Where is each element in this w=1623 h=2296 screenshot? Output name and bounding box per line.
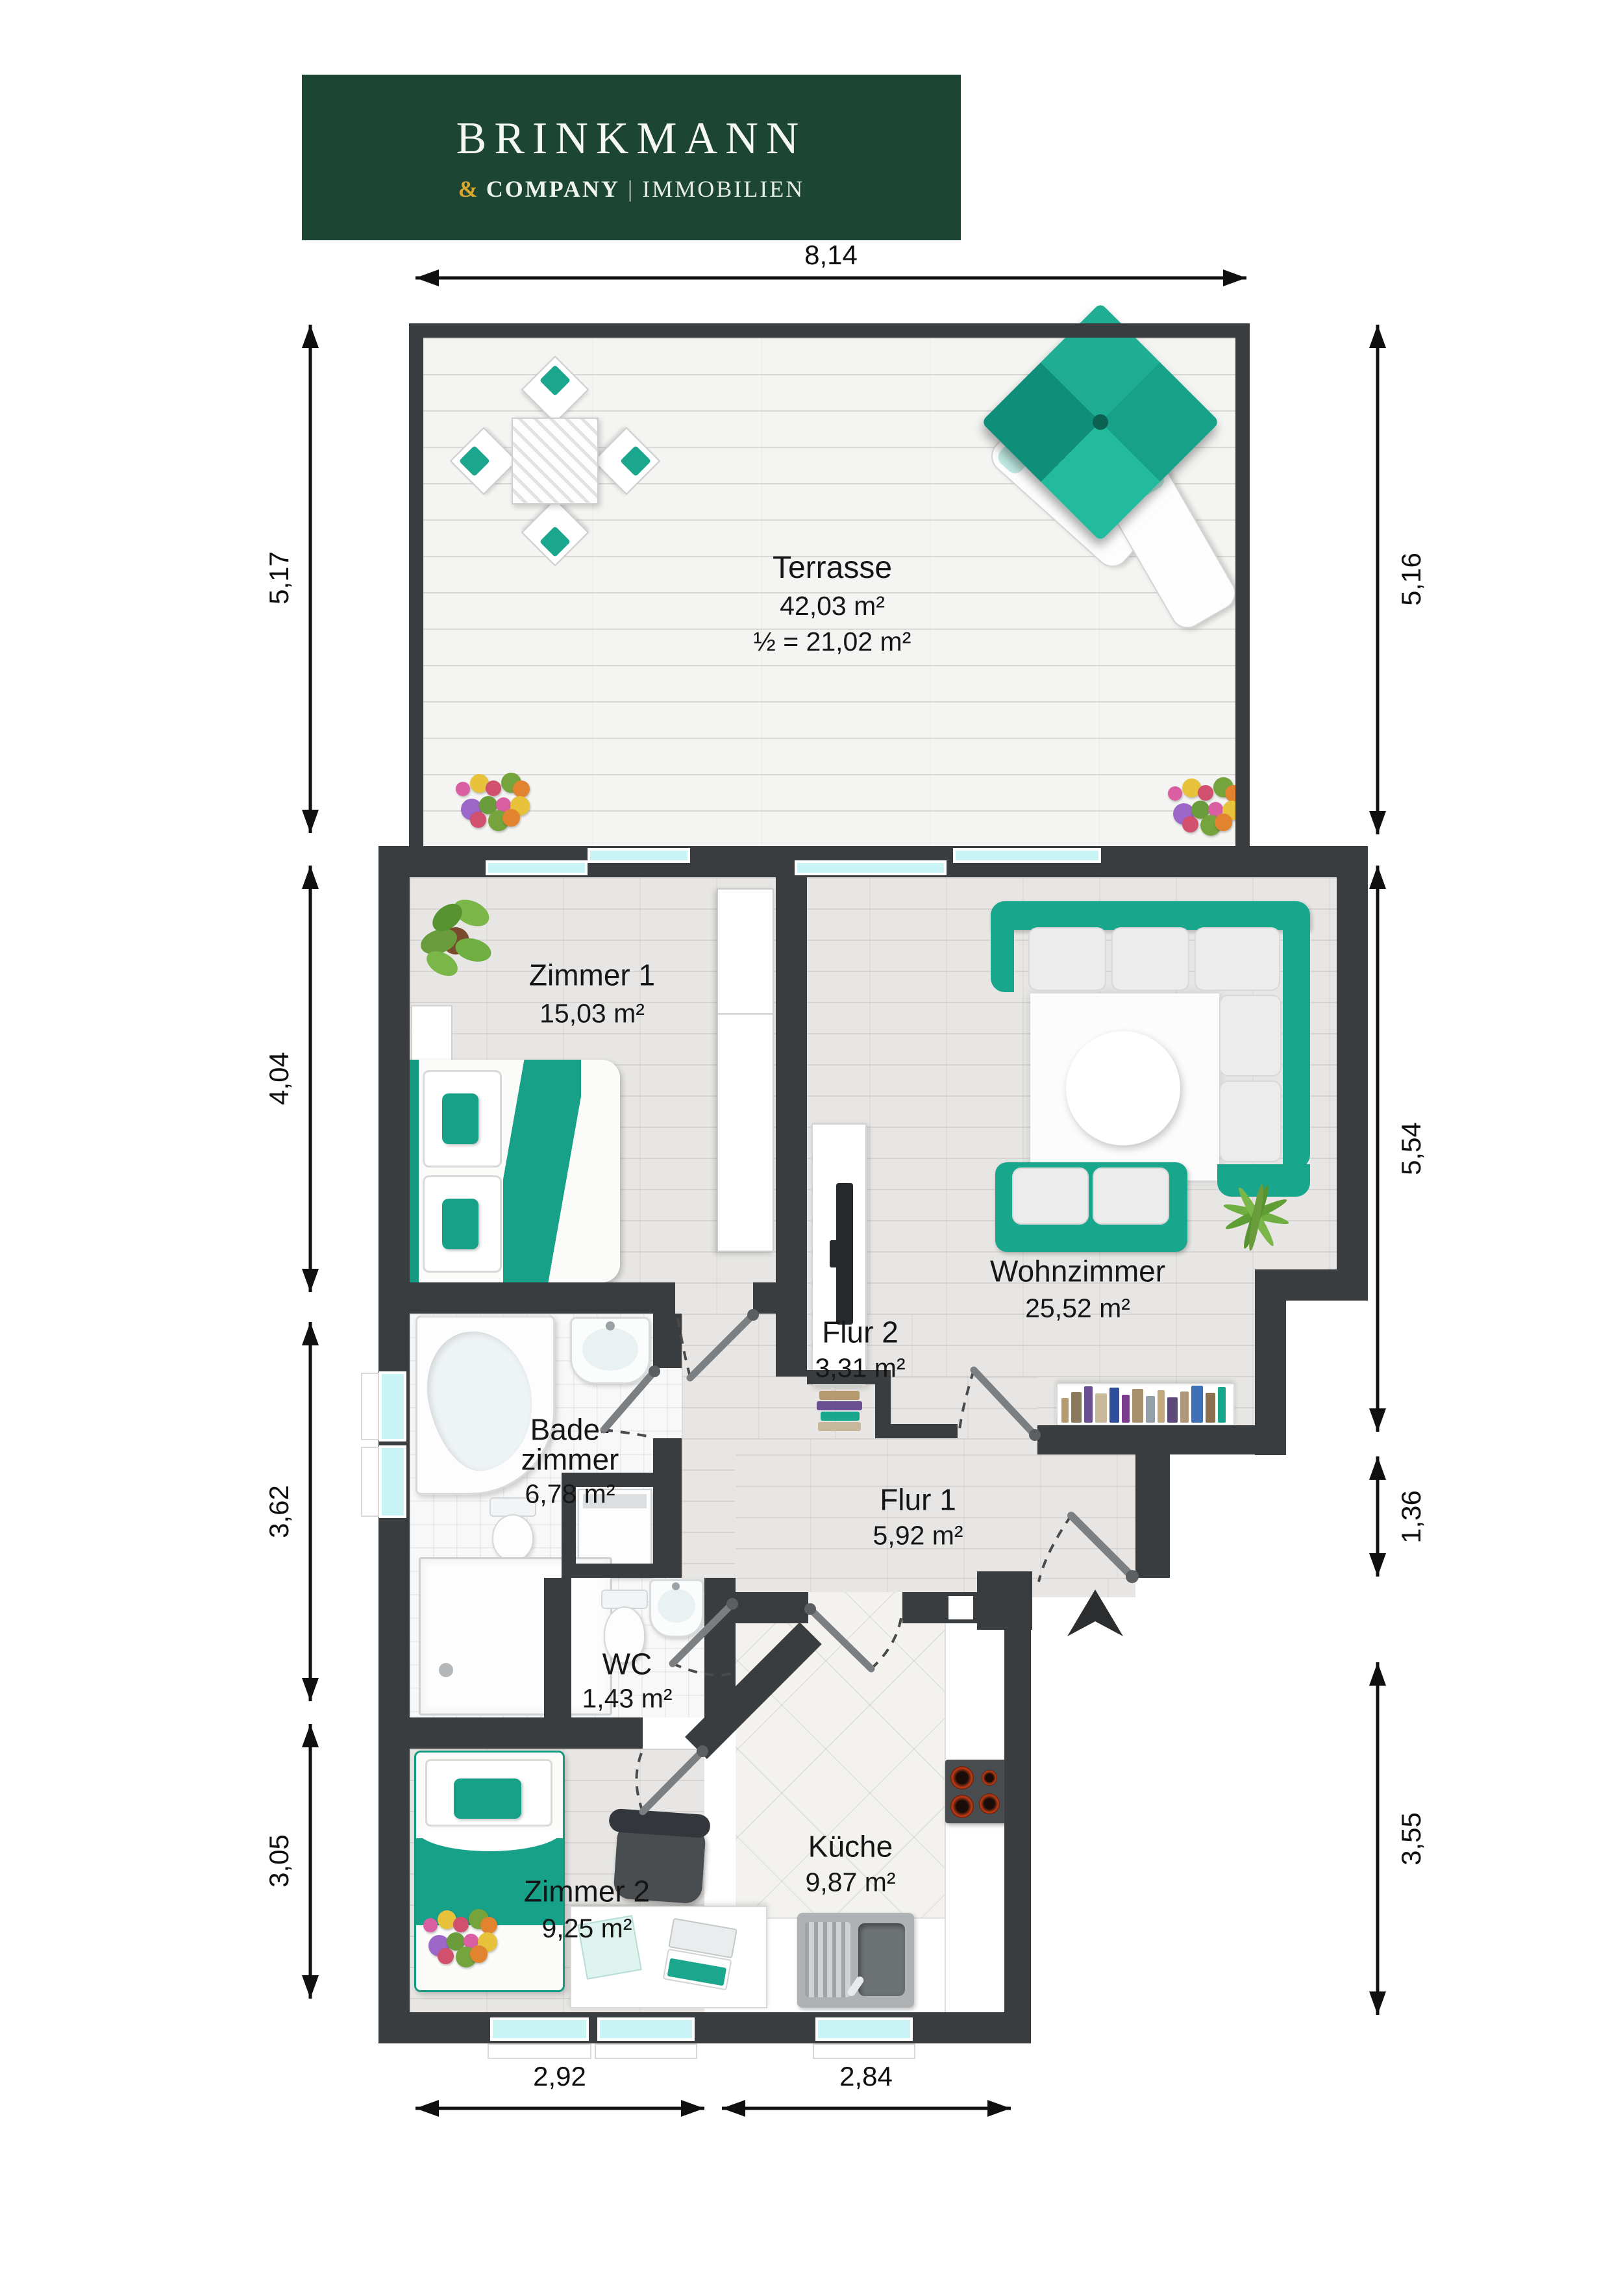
burner (979, 1793, 1000, 1814)
wall-divider-bedroom1-living (776, 877, 807, 1377)
sofa-cushion (1111, 927, 1189, 991)
loveseat-cushion (1012, 1167, 1089, 1225)
sink-basin (582, 1328, 638, 1371)
loveseat-icon (995, 1162, 1187, 1252)
wall-bath-right-b (653, 1438, 682, 1578)
entry-threshold-floor (1031, 1578, 1135, 1597)
sofa-back (991, 901, 1310, 930)
flower-dot (423, 1918, 438, 1932)
dim-label-left-terrace: 5,17 (264, 551, 295, 605)
room-label-badezimmer: Bade- zimmer 6,78 m² (521, 1415, 619, 1508)
wall-bath-right-a (653, 1314, 682, 1368)
wall-bedroom2-top (378, 1717, 643, 1749)
flower-dot (1182, 816, 1198, 832)
palm-plant-icon (1222, 1184, 1291, 1255)
kitchen-niche (945, 1592, 977, 1623)
logo-divider: | (628, 176, 634, 202)
room-name2: zimmer (521, 1445, 619, 1475)
room-label-zimmer2: Zimmer 2 9,25 m² (524, 1877, 650, 1942)
dim-label-bottom-bedroom2: 2,92 (533, 2061, 586, 2092)
flower-box-icon (453, 771, 531, 833)
window-bedroom2 (490, 2017, 589, 2041)
dimension-arrowhead (302, 810, 319, 833)
dimension-arrowhead (302, 325, 319, 348)
outside-cover-right (1286, 1301, 1368, 1455)
hall1-floor-left (682, 1438, 736, 1592)
room-label-kueche: Küche 9,87 m² (806, 1832, 896, 1896)
room-area-half: ½ = 21,02 m² (754, 629, 911, 655)
room-label-flur1: Flur 1 5,92 m² (873, 1485, 963, 1549)
room-area: 9,25 m² (524, 1915, 650, 1942)
room-area: 9,87 m² (806, 1869, 896, 1896)
logo-company: COMPANY (486, 176, 620, 202)
flower-dot (486, 780, 501, 796)
room-label-wc: WC 1,43 m² (582, 1649, 673, 1712)
wall-left (378, 846, 410, 2043)
dimension-arrowhead (1223, 269, 1246, 286)
terrace-dining-table (512, 418, 599, 505)
logo-ampersand: & (458, 176, 480, 202)
room-name: Wohnzimmer (990, 1256, 1165, 1286)
book-spine (1095, 1393, 1107, 1423)
window-livingroom (795, 860, 947, 875)
window-kitchen (815, 2017, 913, 2041)
book-spine (1084, 1386, 1093, 1423)
terrace-wall-left (409, 323, 423, 847)
sink-basin (858, 1923, 905, 1996)
flower-dot (470, 1945, 488, 1963)
room-area: 1,43 m² (582, 1686, 673, 1712)
book-spine (1071, 1392, 1082, 1423)
room-name: Küche (806, 1832, 896, 1862)
dim-label-right-living: 5,54 (1396, 1122, 1427, 1175)
book-spine (1061, 1398, 1069, 1423)
dimension-arrowhead (1369, 1553, 1386, 1577)
double-bed-icon (406, 1060, 620, 1282)
flower-box-icon (1165, 776, 1243, 838)
dim-label-left-bedroom2: 3,05 (264, 1834, 295, 1888)
sink-basin (658, 1589, 695, 1623)
window-bathroom (379, 1371, 406, 1441)
laptop-icon (662, 1918, 741, 1993)
chair-cushion (539, 526, 571, 557)
book-spine (1158, 1390, 1165, 1423)
window-bathroom (379, 1445, 406, 1518)
flower-dot (456, 782, 470, 796)
window-livingroom (953, 848, 1101, 863)
book-spine (1122, 1395, 1130, 1423)
room-area: 15,03 m² (529, 1001, 655, 1027)
window-sill (813, 2043, 915, 2059)
dimension-arrowhead (1369, 811, 1386, 834)
logo-title: BRINKMANN (456, 113, 807, 165)
shower-drain (439, 1663, 453, 1677)
book-spine (1132, 1389, 1143, 1423)
coffee-table-icon (1066, 1031, 1180, 1145)
dimension-arrowhead (302, 1975, 319, 1999)
flower-dot (502, 809, 520, 827)
flower-dot (480, 1917, 497, 1934)
sofa-cushion (1195, 927, 1280, 991)
wall-kitchen-top-a (736, 1592, 808, 1623)
sofa-cushion (1219, 995, 1282, 1077)
wardrobe-icon (717, 888, 774, 1252)
wc-sink-icon (649, 1579, 704, 1638)
flower-dot (438, 1948, 454, 1964)
dimension-arrowhead (302, 1724, 319, 1747)
room-area: 3,31 m² (815, 1355, 906, 1382)
window-bedroom1 (486, 860, 588, 875)
sink-tap (606, 1321, 615, 1330)
wall-wc-left (544, 1578, 571, 1717)
dimension-arrowhead (415, 269, 439, 286)
cooktop-icon (945, 1760, 1006, 1823)
company-logo: BRINKMANN &COMPANY|IMMOBILIEN (302, 75, 961, 240)
room-name: WC (582, 1649, 673, 1679)
tv-stand (830, 1240, 839, 1267)
flower-dot (1198, 785, 1213, 801)
dimension-arrowhead (302, 1678, 319, 1701)
sink-tap (672, 1582, 680, 1590)
parasol-pole (1089, 411, 1111, 433)
dimension-arrowhead (681, 2100, 704, 2117)
sofa-left-arm (991, 901, 1014, 992)
wall-entry-block (977, 1571, 1032, 1630)
burner (950, 1795, 974, 1818)
sofa-cushion (1028, 927, 1106, 991)
floorplan-canvas: BRINKMANN &COMPANY|IMMOBILIEN (0, 0, 1623, 2296)
wardrobe-divider (718, 1013, 773, 1015)
dim-label-top: 8,14 (804, 240, 858, 271)
wall-bottom (378, 2012, 1031, 2043)
dim-label-left-bedroom1: 4,04 (264, 1052, 295, 1105)
dimension-arrowhead (1369, 1408, 1386, 1432)
flower-dot (1215, 814, 1232, 831)
book-spine (1180, 1391, 1189, 1423)
sink-drainer (805, 1922, 850, 1997)
window-sill (361, 1373, 379, 1440)
book-stack-icon (817, 1391, 865, 1432)
loveseat-cushion (1093, 1167, 1169, 1225)
toilet-bowl (492, 1514, 534, 1561)
wall-niche-bottom (576, 1564, 653, 1578)
book-spine (1146, 1396, 1155, 1423)
terrace-wall-right (1235, 323, 1250, 847)
chair-cushion (459, 445, 490, 477)
dimension-arrowhead (302, 1269, 319, 1292)
sofa-cushion (1219, 1080, 1282, 1162)
book-spine (1206, 1393, 1215, 1423)
tv-icon (836, 1183, 853, 1325)
dimension-arrowhead (415, 2100, 439, 2117)
dimension-arrowhead (1369, 1662, 1386, 1686)
window-bedroom1 (588, 848, 690, 863)
room-label-zimmer1: Zimmer 1 15,03 m² (529, 960, 655, 1027)
window-sill (595, 2043, 697, 2059)
dimension-arrowhead (302, 866, 319, 889)
wall-right-jog (1255, 1269, 1368, 1301)
room-area: 6,78 m² (521, 1481, 619, 1508)
bed-cushion-teal (442, 1199, 478, 1249)
sofa-right-arm (1283, 901, 1310, 1169)
room-label-flur2: Flur 2 3,31 m² (815, 1317, 906, 1382)
wall-bedroom1-bottom (378, 1282, 675, 1314)
dim-label-right-kitchen: 3,55 (1396, 1812, 1427, 1865)
room-name: Zimmer 1 (529, 960, 655, 990)
dimension-arrowhead (1369, 1991, 1386, 2015)
bathroom-sink-icon (570, 1317, 650, 1384)
dim-label-bottom-kitchen: 2,84 (839, 2061, 893, 2092)
window-sill (361, 1447, 379, 1517)
book (821, 1412, 860, 1421)
book (819, 1391, 860, 1400)
room-name: Zimmer 2 (524, 1877, 650, 1906)
wall-kitchen-top-b (902, 1592, 945, 1623)
flower-dot (513, 780, 530, 797)
room-label-wohnzimmer: Wohnzimmer 25,52 m² (990, 1256, 1165, 1322)
wall-kitchen-right (1004, 1630, 1031, 2012)
book (818, 1422, 861, 1431)
dimension-arrowhead (987, 2100, 1011, 2117)
kitchen-sink-icon (797, 1913, 914, 2008)
room-name: Flur 1 (873, 1485, 963, 1515)
book-spine (1218, 1387, 1226, 1423)
window-bedroom2 (597, 2017, 695, 2041)
wall-right-upper (1337, 846, 1368, 1301)
wall-entry-side (1135, 1454, 1170, 1578)
room-area: 42,03 m² (754, 593, 911, 619)
bed-duvet-teal (503, 1060, 581, 1282)
window-sill (488, 2043, 591, 2059)
burner (982, 1770, 997, 1786)
bed-cushion-teal (454, 1778, 521, 1819)
wall-hall2-foot (875, 1424, 958, 1438)
dim-label-right-entry: 1,36 (1396, 1490, 1427, 1543)
terrace-wall-top (409, 323, 1250, 338)
dimension-arrowhead (1369, 866, 1386, 889)
burner (950, 1766, 974, 1790)
chair-cushion (539, 365, 571, 396)
logo-immobilien: IMMOBILIEN (642, 176, 804, 202)
book-spine (1167, 1397, 1178, 1423)
room-name: Terrasse (754, 553, 911, 584)
dim-label-left-bath: 3,62 (264, 1485, 295, 1538)
book (817, 1401, 862, 1410)
bookshelf-icon (1056, 1383, 1235, 1426)
room-label-terrasse: Terrasse 42,03 m² ½ = 21,02 m² (754, 553, 911, 655)
room-name: Flur 2 (815, 1317, 906, 1347)
wall-livingroom-bottom (1037, 1425, 1286, 1454)
dimension-arrowhead (722, 2100, 745, 2117)
flower-dot (1168, 786, 1182, 801)
dimension-arrowhead (1369, 325, 1386, 348)
plant-icon (419, 896, 491, 982)
dim-label-right-terrace: 5,16 (1396, 553, 1427, 606)
wall-bedroom1-bottom-b (753, 1282, 776, 1314)
logo-subtitle: &COMPANY|IMMOBILIEN (458, 175, 805, 203)
room-area: 25,52 m² (990, 1295, 1165, 1322)
room-name: Bade- (521, 1415, 619, 1445)
bed-cushion-teal (442, 1093, 478, 1144)
flower-dot (453, 1917, 469, 1932)
dimension-arrowhead (302, 1322, 319, 1345)
dimension-arrowhead (1369, 1456, 1386, 1480)
book-spine (1109, 1388, 1119, 1423)
book-spine (1191, 1386, 1203, 1423)
chair-cushion (620, 445, 651, 477)
flower-dot (470, 812, 486, 828)
flower-rug-icon (421, 1908, 512, 1992)
room-area: 5,92 m² (873, 1523, 963, 1549)
